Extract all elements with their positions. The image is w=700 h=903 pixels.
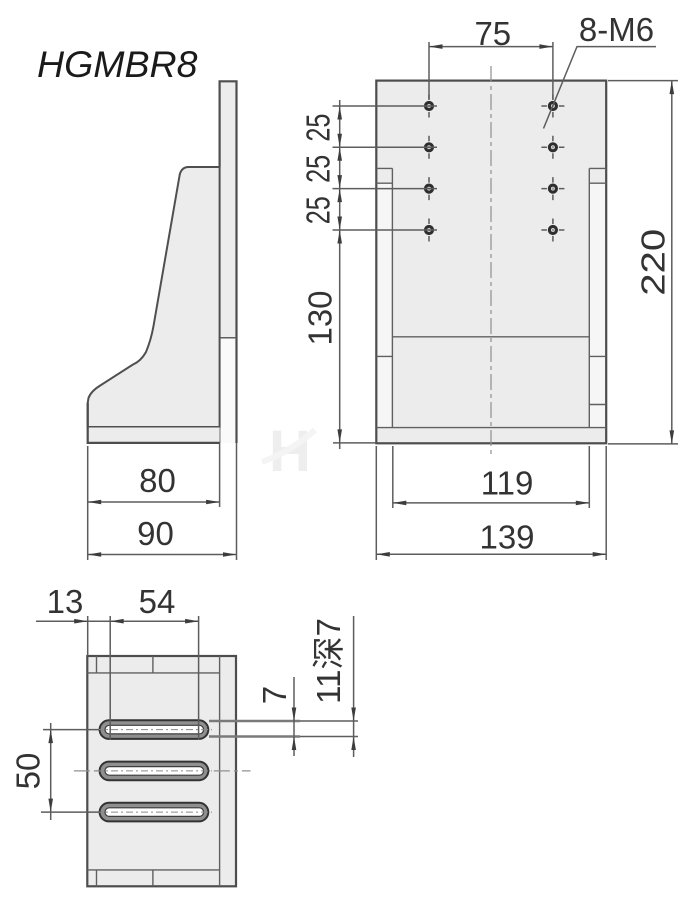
svg-text:80: 80 [139,462,176,499]
svg-text:50: 50 [10,753,47,790]
svg-text:25: 25 [300,196,337,224]
svg-text:HGMBR8: HGMBR8 [37,43,198,85]
svg-text:220: 220 [634,229,671,296]
svg-text:119: 119 [481,465,534,502]
svg-text:13: 13 [47,583,84,620]
svg-text:25: 25 [300,114,337,142]
svg-text:8-M6: 8-M6 [579,11,654,48]
svg-text:25: 25 [300,155,337,183]
svg-text:90: 90 [137,515,174,552]
svg-text:75: 75 [474,15,511,52]
svg-text:130: 130 [302,290,339,345]
svg-text:7: 7 [256,686,293,704]
svg-text:11深7: 11深7 [310,618,347,704]
svg-text:139: 139 [479,519,534,556]
svg-text:54: 54 [139,583,176,620]
